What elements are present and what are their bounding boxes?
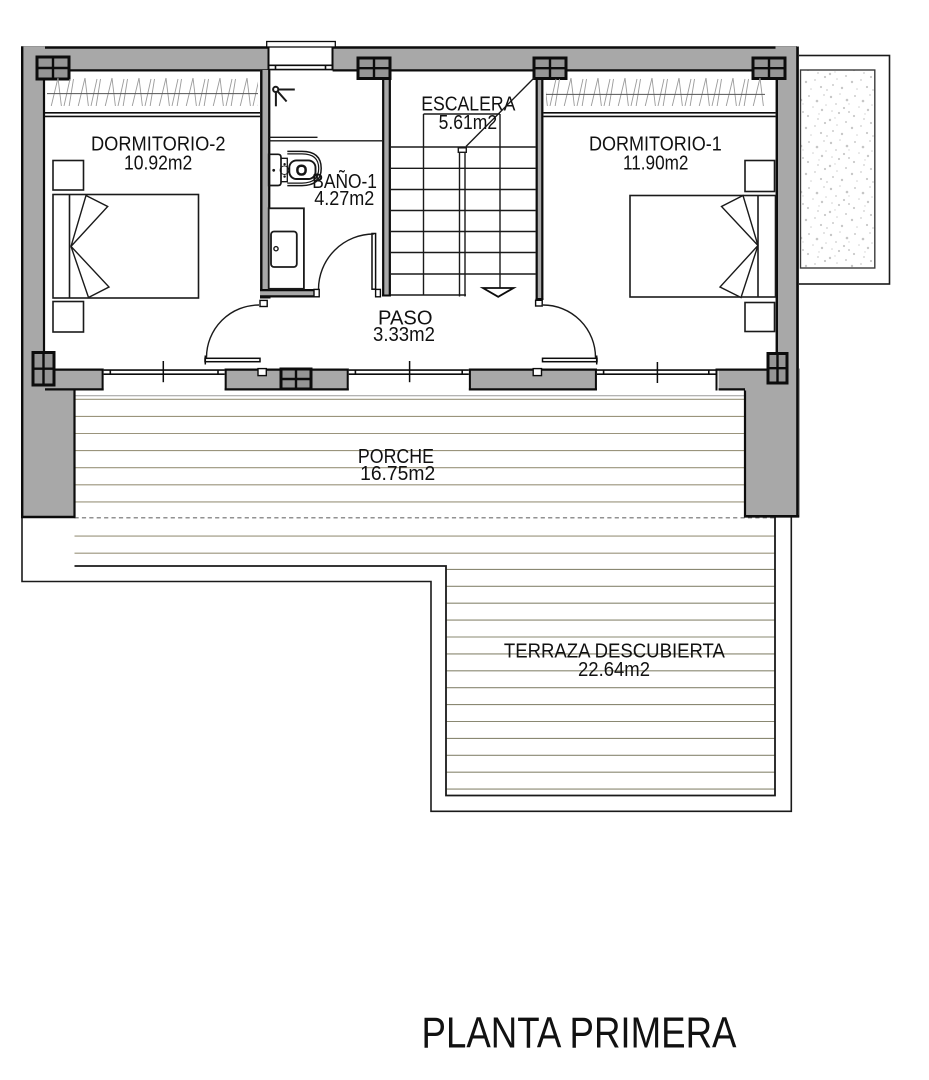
svg-text:22.64m2: 22.64m2 xyxy=(578,659,650,681)
svg-text:5.61m2: 5.61m2 xyxy=(439,112,498,134)
svg-text:11.90m2: 11.90m2 xyxy=(623,152,688,174)
svg-text:4.27m2: 4.27m2 xyxy=(314,188,374,210)
svg-text:16.75m2: 16.75m2 xyxy=(360,463,435,485)
svg-text:PLANTA PRIMERA: PLANTA PRIMERA xyxy=(422,1010,737,1058)
svg-text:10.92m2: 10.92m2 xyxy=(124,152,192,174)
svg-text:3.33m2: 3.33m2 xyxy=(373,324,435,346)
